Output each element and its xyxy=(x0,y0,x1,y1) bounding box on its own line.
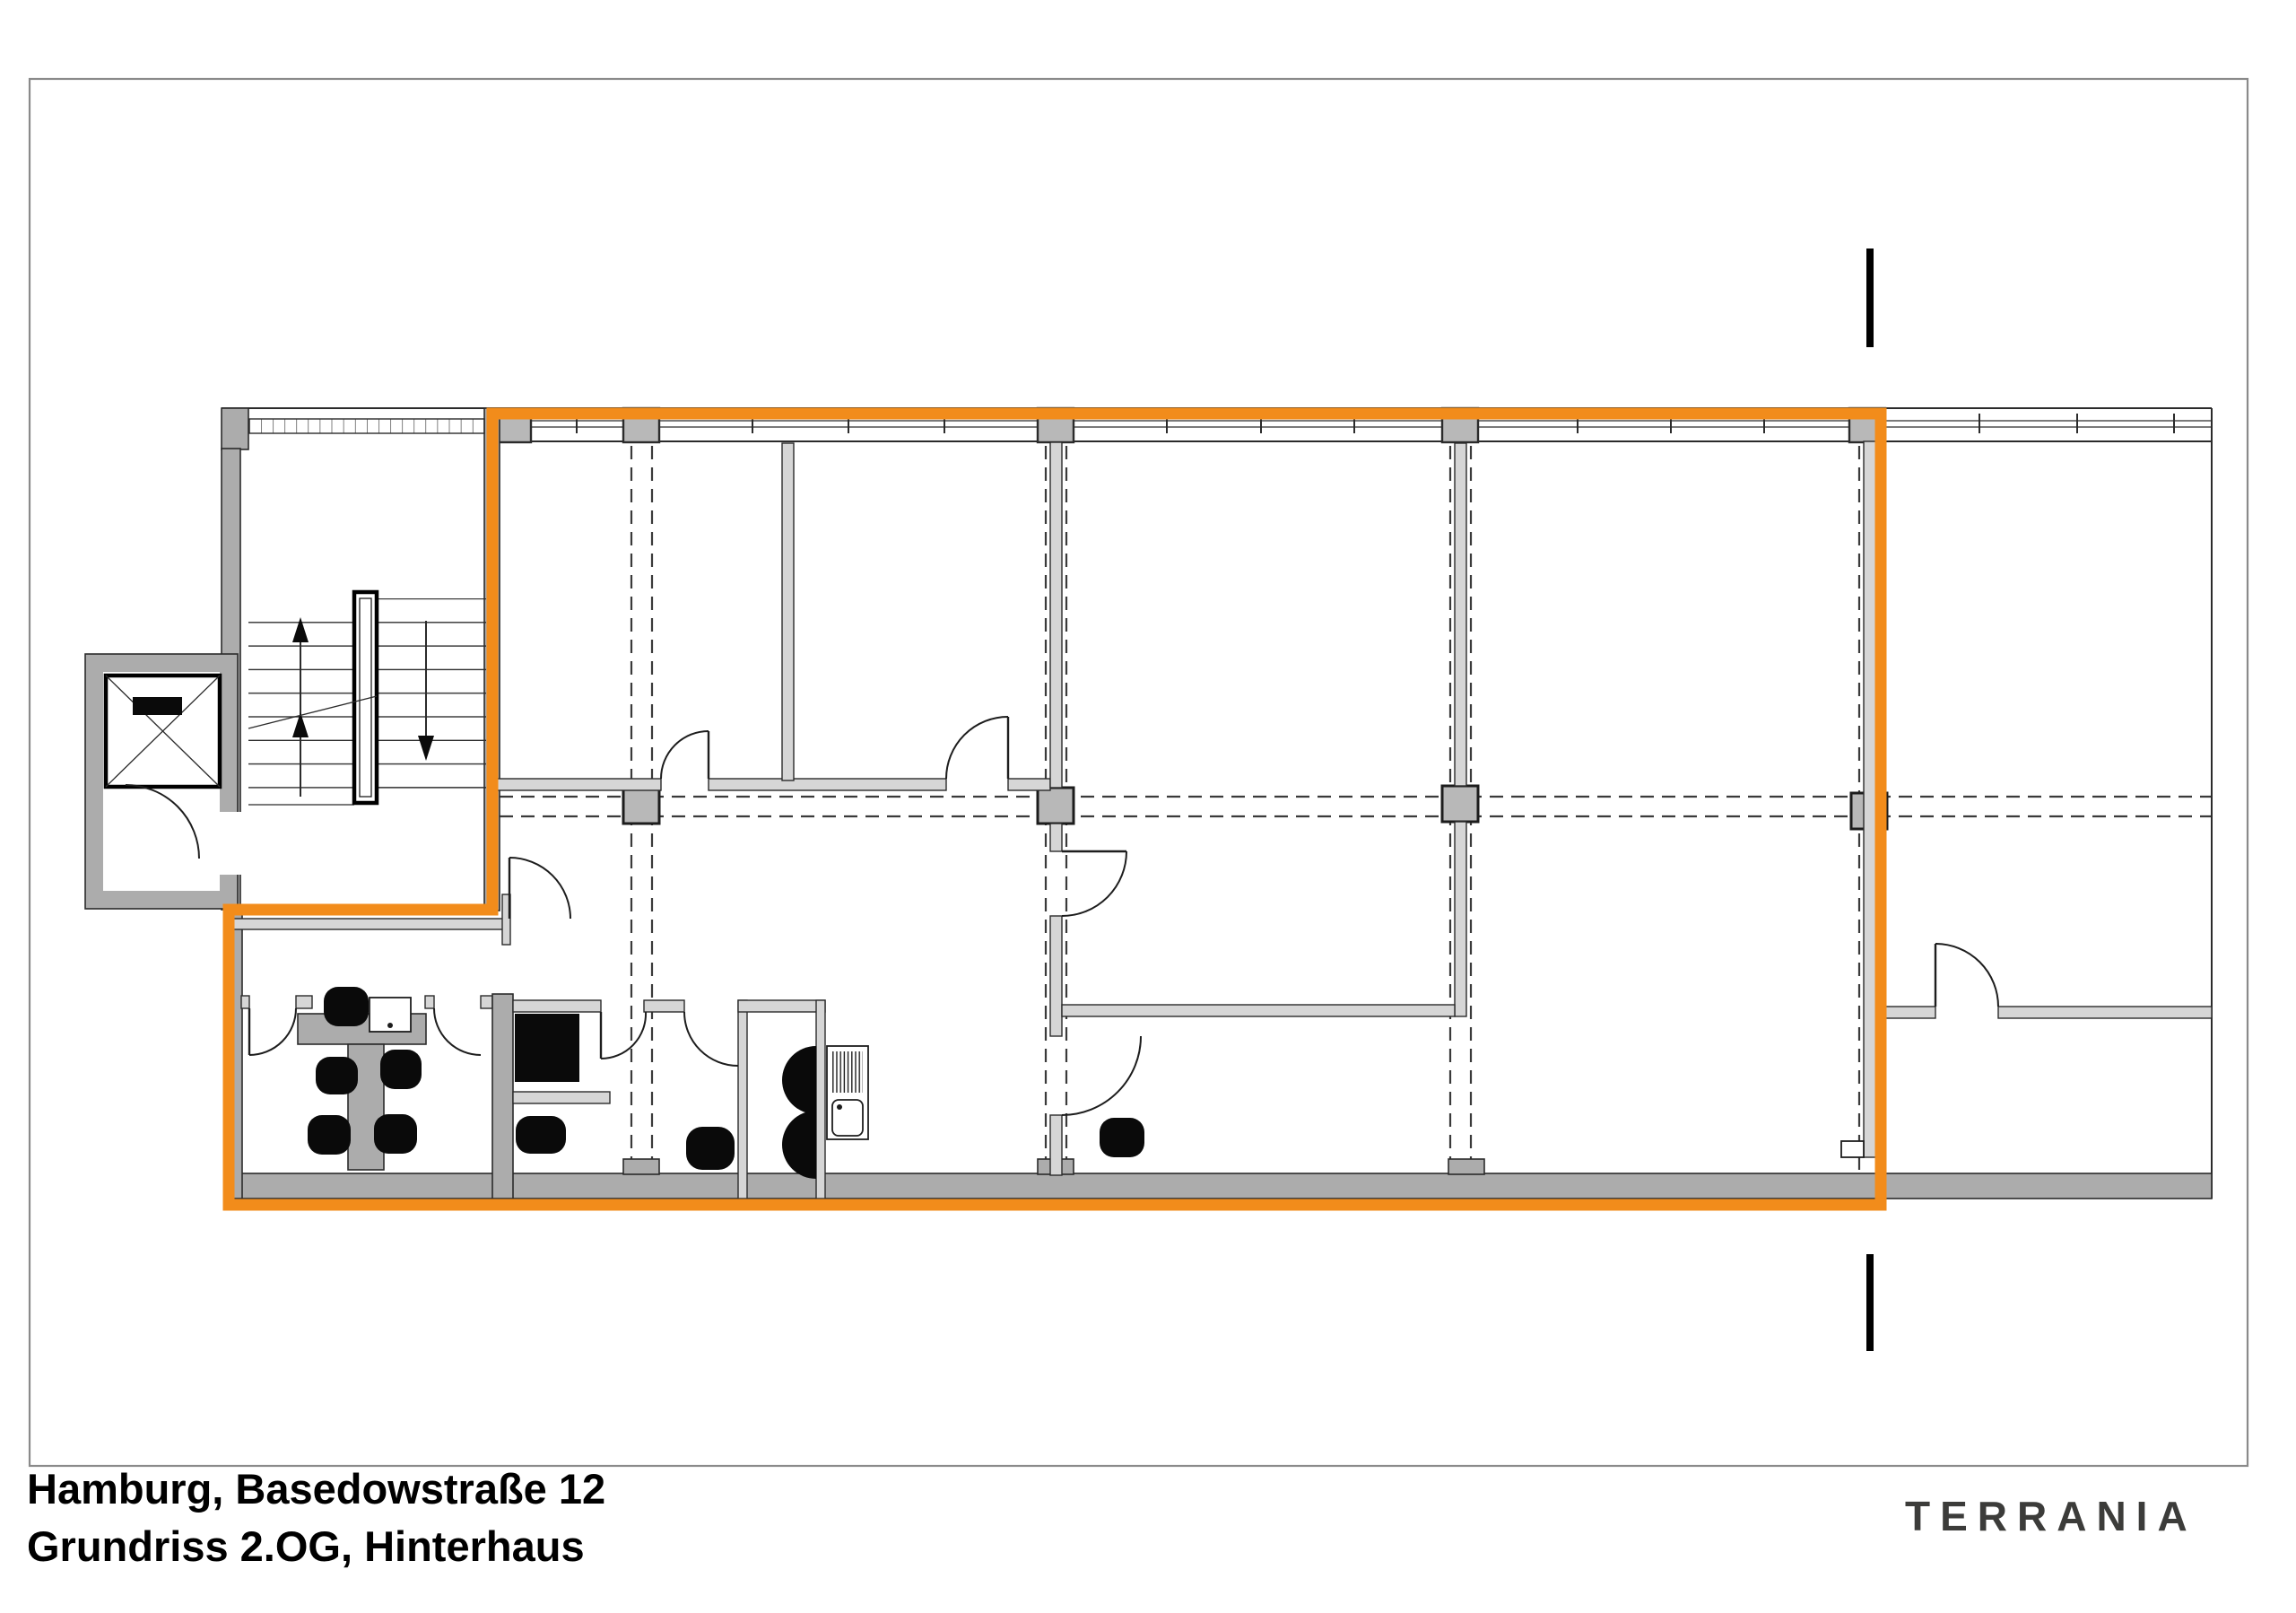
faucet xyxy=(837,1104,842,1110)
kitchenette xyxy=(827,1046,868,1139)
terrania-logo: TERRANIA xyxy=(1905,1493,2197,1539)
stair-flight-right xyxy=(377,598,486,788)
column xyxy=(1442,786,1478,822)
unit-divider-wall xyxy=(1864,441,1876,1157)
elevator-annex xyxy=(85,654,250,909)
column xyxy=(623,788,659,824)
section-cut-bar-top xyxy=(1866,248,1874,347)
column xyxy=(1038,788,1074,824)
chair xyxy=(1100,1118,1144,1157)
wall-niche xyxy=(1841,1141,1864,1157)
chair xyxy=(516,1116,566,1154)
interior-partitions xyxy=(230,441,2212,1199)
kitchen-drainer xyxy=(832,1051,863,1093)
floor-plan-page: Hamburg, Basedowstraße 12 Grundriss 2.OG… xyxy=(0,0,2296,1613)
chair xyxy=(380,1050,422,1089)
desk xyxy=(515,1014,579,1082)
wall-opening xyxy=(218,812,250,875)
stairwell xyxy=(222,408,500,911)
chair xyxy=(374,1114,417,1154)
chair xyxy=(782,1046,816,1114)
elevator-counterweight xyxy=(133,697,182,715)
chair xyxy=(324,987,369,1026)
address-title: Hamburg, Basedowstraße 12 xyxy=(27,1465,605,1513)
plan-subtitle: Grundriss 2.OG, Hinterhaus xyxy=(27,1522,585,1570)
floor-plan-drawing: Hamburg, Basedowstraße 12 Grundriss 2.OG… xyxy=(0,0,2296,1613)
chair xyxy=(686,1127,735,1170)
elevator-shaft-cross-icon xyxy=(106,676,220,787)
stair-window-band xyxy=(249,419,484,433)
structural-columns xyxy=(623,786,1887,829)
beam-grid-dashed-lines xyxy=(500,446,2212,1172)
kitchen-sink xyxy=(832,1100,863,1136)
chair xyxy=(308,1115,351,1155)
rear-exterior-wall xyxy=(230,1173,2212,1199)
chair xyxy=(316,1057,358,1094)
section-cut-bar-bottom xyxy=(1866,1254,1874,1351)
furniture xyxy=(298,987,1144,1179)
chair xyxy=(782,1111,816,1179)
